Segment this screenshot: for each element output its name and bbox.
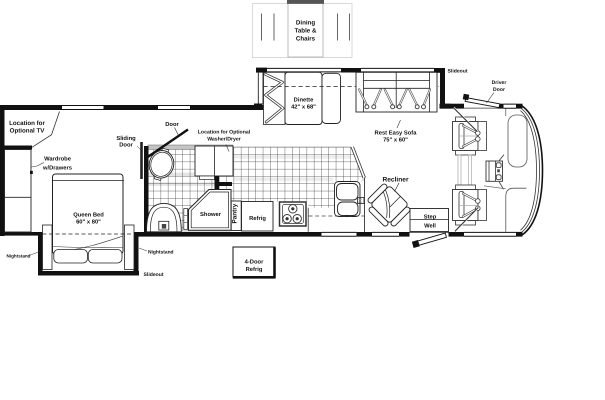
svg-text:Location for: Location for	[9, 120, 45, 127]
svg-text:Door: Door	[119, 143, 133, 149]
svg-text:Step: Step	[424, 214, 437, 221]
svg-text:4-Door: 4-Door	[245, 260, 264, 266]
svg-text:w/Drawers: w/Drawers	[42, 164, 72, 171]
svg-text:Nightstand: Nightstand	[148, 250, 174, 256]
svg-text:Table &: Table &	[295, 28, 317, 35]
svg-text:Recliner: Recliner	[382, 176, 408, 183]
svg-text:Queen Bed: Queen Bed	[73, 211, 104, 218]
svg-text:Dining: Dining	[296, 20, 315, 27]
svg-text:Sliding: Sliding	[116, 135, 136, 142]
svg-text:Wardrobe: Wardrobe	[44, 155, 72, 162]
svg-text:Chairs: Chairs	[296, 36, 316, 43]
svg-text:Nightstand: Nightstand	[7, 254, 31, 259]
svg-text:Refrig: Refrig	[249, 215, 266, 222]
svg-text:Location for Optional: Location for Optional	[198, 130, 251, 136]
svg-text:Driver: Driver	[492, 80, 507, 86]
svg-text:75" x 60": 75" x 60"	[383, 137, 408, 144]
svg-text:Well: Well	[424, 223, 436, 230]
svg-text:42" x 68": 42" x 68"	[291, 104, 316, 111]
svg-text:Slideout: Slideout	[144, 272, 164, 278]
svg-text:Rest Easy Sofa: Rest Easy Sofa	[375, 130, 418, 137]
svg-text:Door: Door	[165, 122, 179, 128]
svg-text:Optional TV: Optional TV	[10, 128, 46, 135]
svg-text:60" x 80": 60" x 80"	[76, 218, 101, 225]
svg-text:Shower: Shower	[200, 211, 222, 218]
svg-text:Dinette: Dinette	[294, 97, 314, 104]
svg-text:Pantry: Pantry	[231, 203, 238, 223]
svg-text:Refrig: Refrig	[246, 266, 263, 273]
svg-text:Slideout: Slideout	[448, 68, 468, 74]
svg-text:Door: Door	[493, 87, 505, 93]
svg-text:Washer/Dryer: Washer/Dryer	[207, 136, 241, 142]
